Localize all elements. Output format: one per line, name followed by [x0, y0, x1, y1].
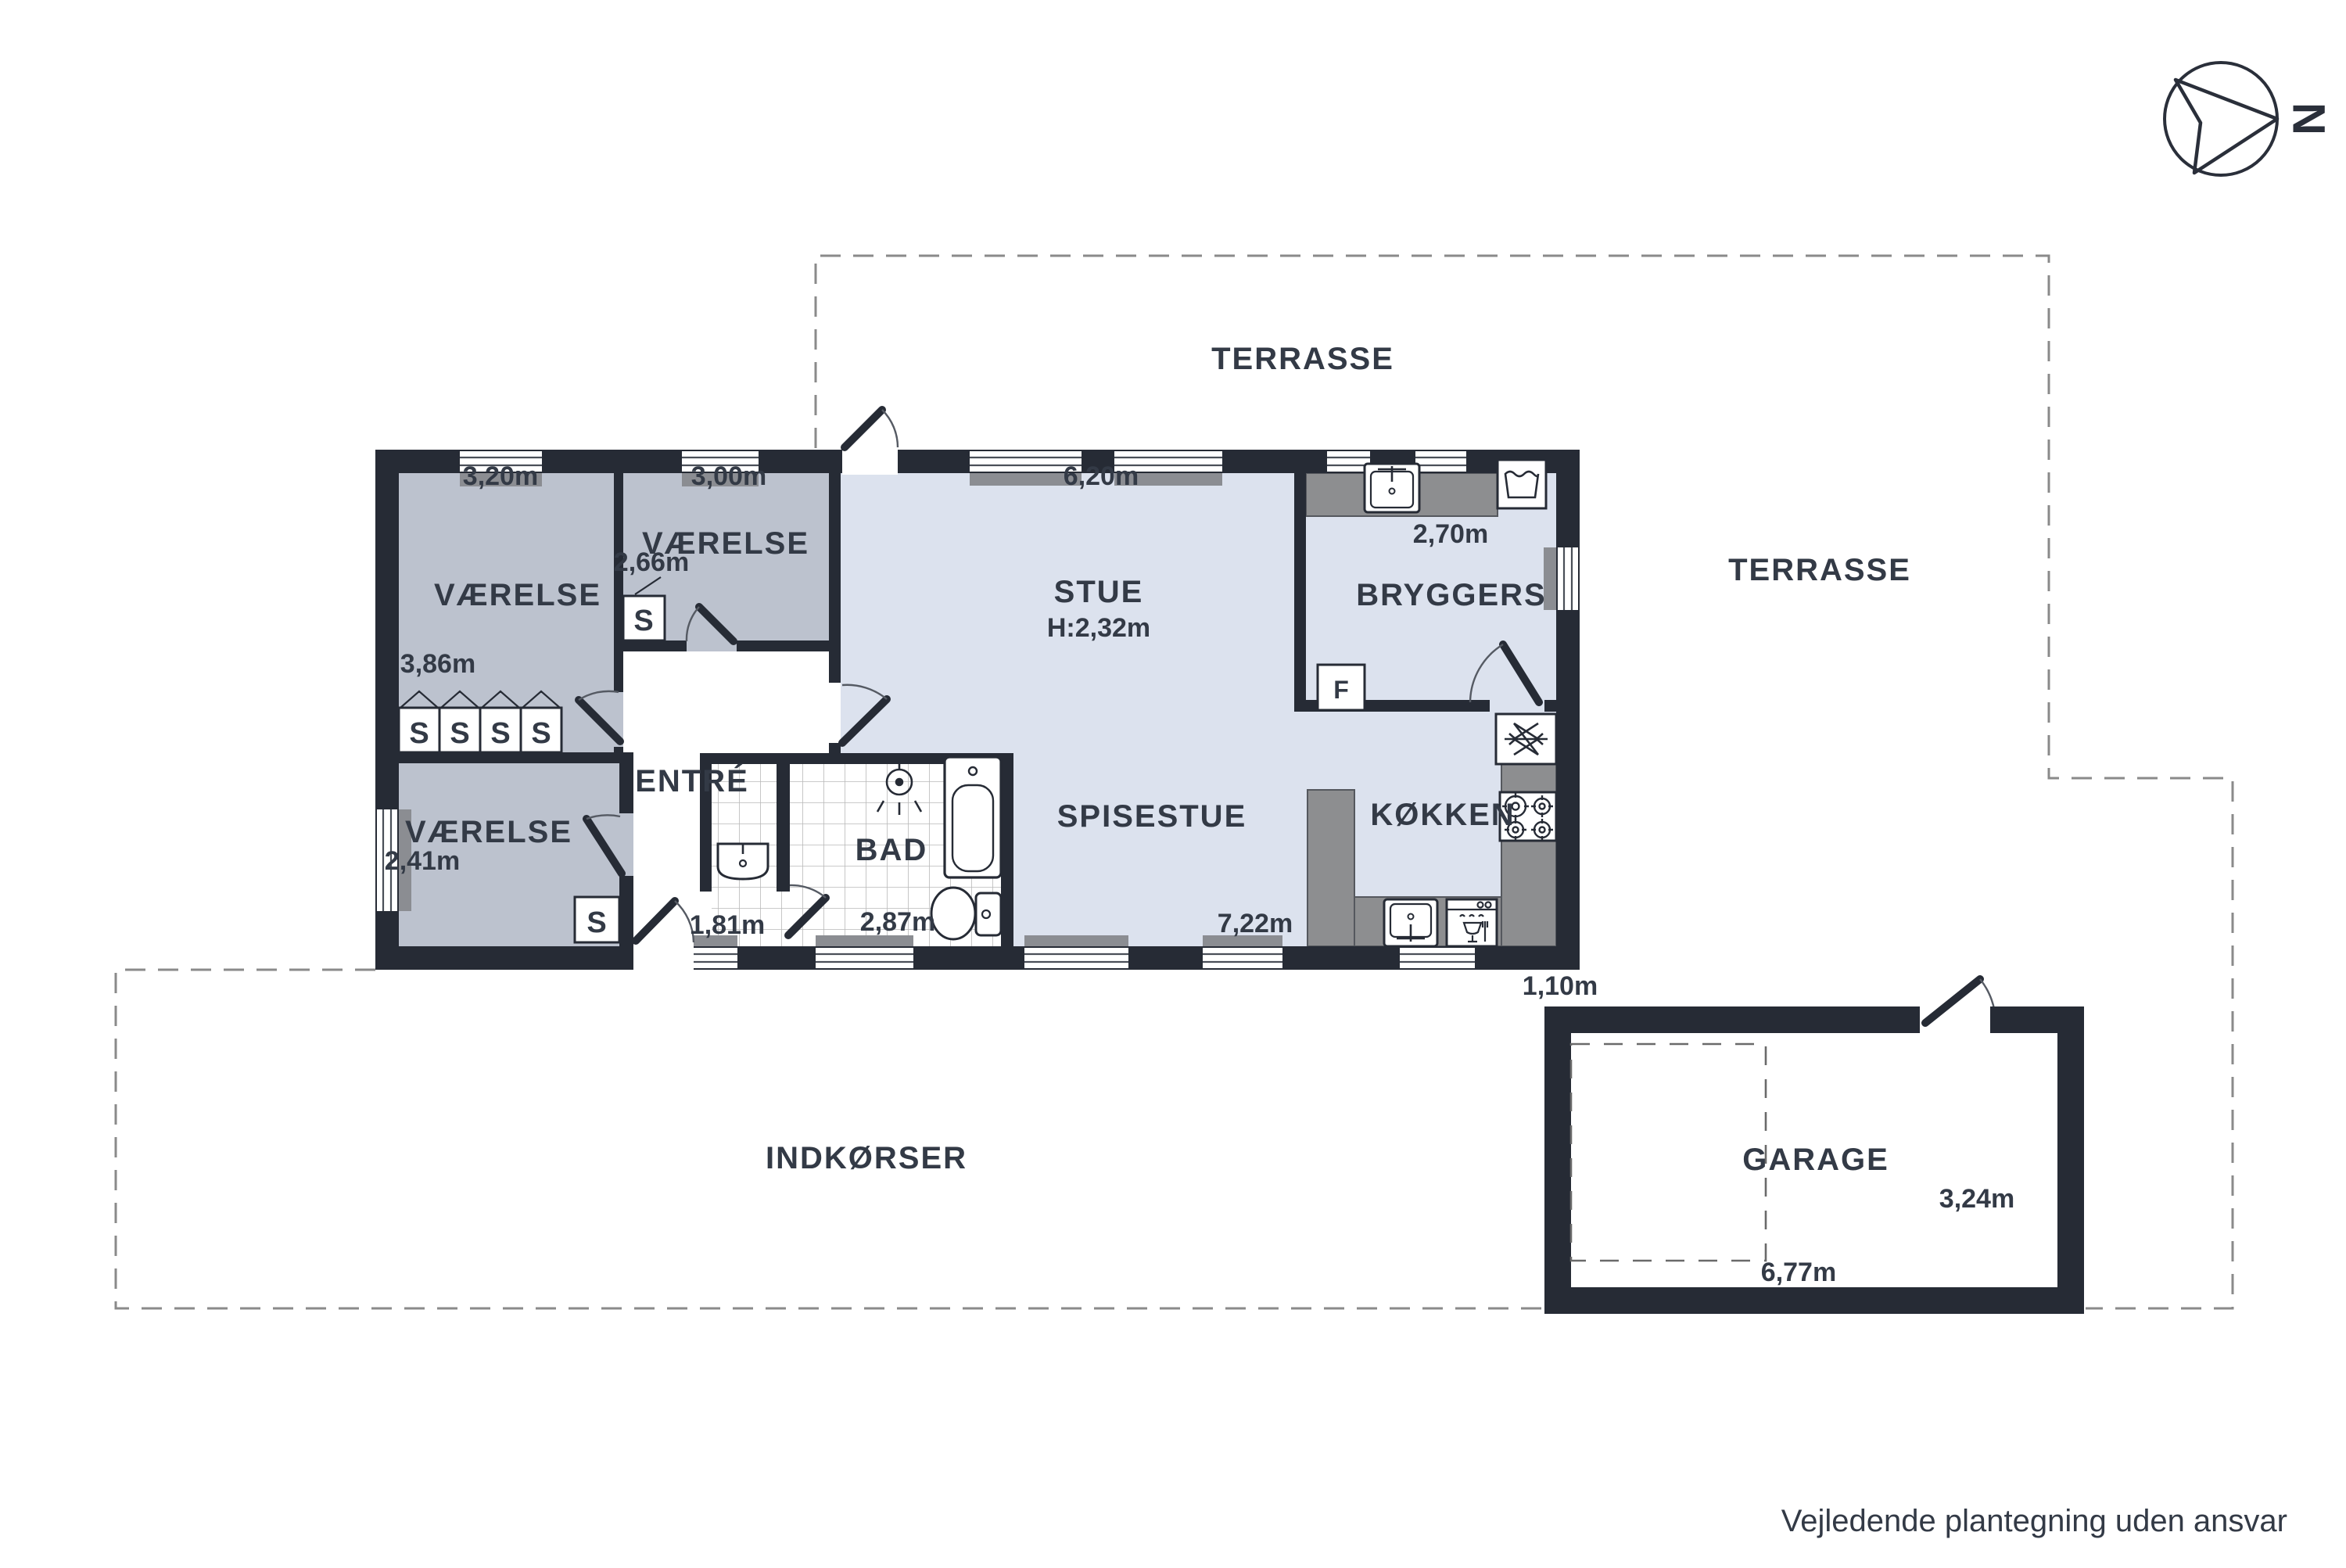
garage-width: 6,77m [1761, 1258, 1836, 1287]
bath-width: 2,87m [860, 907, 935, 937]
living-ceiling: H:2,32m [1047, 613, 1150, 643]
terrace-top-label: TERRASSE [1211, 342, 1394, 376]
bedroom-n-width: 3,00m [691, 461, 766, 491]
closet-letter: S [586, 906, 606, 939]
bedroom-sw-label: VÆRELSE [405, 815, 572, 849]
kitchen-island-counter [1308, 790, 1354, 946]
living-label: STUE [1054, 575, 1144, 609]
bath-label: BAD [856, 833, 928, 867]
freezer-letter: F [1333, 676, 1349, 704]
living-width: 6,20m [1064, 461, 1139, 491]
floor-plan: S S S S S S F [0, 0, 2346, 1564]
bedroom-nw-width: 3,20m [463, 461, 538, 491]
toilet-icon [931, 888, 1001, 939]
garage-depth: 3,24m [1939, 1184, 2014, 1214]
bedroom-nw-label: VÆRELSE [434, 578, 601, 612]
terrace-right-label: TERRASSE [1728, 553, 1911, 587]
kitchen-sink-icon [1384, 899, 1437, 946]
garage-label: GARAGE [1742, 1143, 1889, 1177]
bathtub-icon [945, 757, 1001, 877]
freezer-icon [1496, 714, 1556, 764]
entry-width: 1,81m [690, 910, 765, 940]
driveway-label: INDKØRSER [766, 1141, 967, 1175]
kitchen-label: KØKKEN [1370, 798, 1515, 832]
disclaimer-note: Vejledende plantegning uden ansvar [1781, 1504, 2287, 1538]
closet-letter: S [633, 605, 653, 637]
entry-label: ENTRÉ [635, 763, 749, 798]
dining-label: SPISESTUE [1057, 799, 1247, 834]
utility-label: BRYGGERS [1356, 578, 1546, 612]
compass-north-letter: N [2283, 102, 2334, 135]
utility-sink-icon [1365, 464, 1419, 512]
utility-width: 2,70m [1413, 519, 1488, 549]
terrace-door-opening [842, 448, 898, 475]
washing-machine-icon [1498, 460, 1546, 508]
freezer-cabinet: F [1318, 665, 1365, 710]
bedroom-nw-depth: 3,86m [400, 649, 475, 679]
closet-letter: S [531, 717, 551, 750]
bedroom-sw-width: 2,41m [385, 846, 460, 876]
closet-letter: S [450, 717, 469, 750]
dining-width: 7,22m [1218, 909, 1293, 938]
front-door-opening [633, 945, 694, 971]
washbasin-icon [718, 844, 768, 879]
dishwasher-icon [1447, 899, 1497, 946]
closet-letter: S [409, 717, 429, 750]
bedroom-n-closet: 2,66m [614, 547, 689, 577]
closet-letter: S [490, 717, 510, 750]
garage-gap: 1,10m [1523, 971, 1598, 1001]
